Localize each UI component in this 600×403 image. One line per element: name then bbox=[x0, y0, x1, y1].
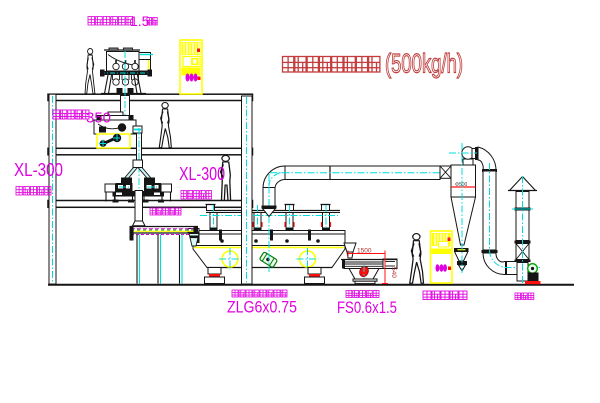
svg-text:(500kg/h): (500kg/h) bbox=[385, 49, 463, 79]
svg-text:1500: 1500 bbox=[357, 248, 372, 255]
svg-text:XL-300: XL-300 bbox=[179, 164, 225, 184]
svg-text:540: 540 bbox=[390, 267, 397, 278]
svg-text:ZLG6x0.75: ZLG6x0.75 bbox=[227, 298, 297, 317]
svg-text:FS0.6x1.5: FS0.6x1.5 bbox=[337, 298, 397, 317]
svg-text:Φ500: Φ500 bbox=[455, 182, 468, 188]
svg-text:XL-300: XL-300 bbox=[14, 160, 63, 180]
svg-text:350: 350 bbox=[86, 110, 111, 127]
